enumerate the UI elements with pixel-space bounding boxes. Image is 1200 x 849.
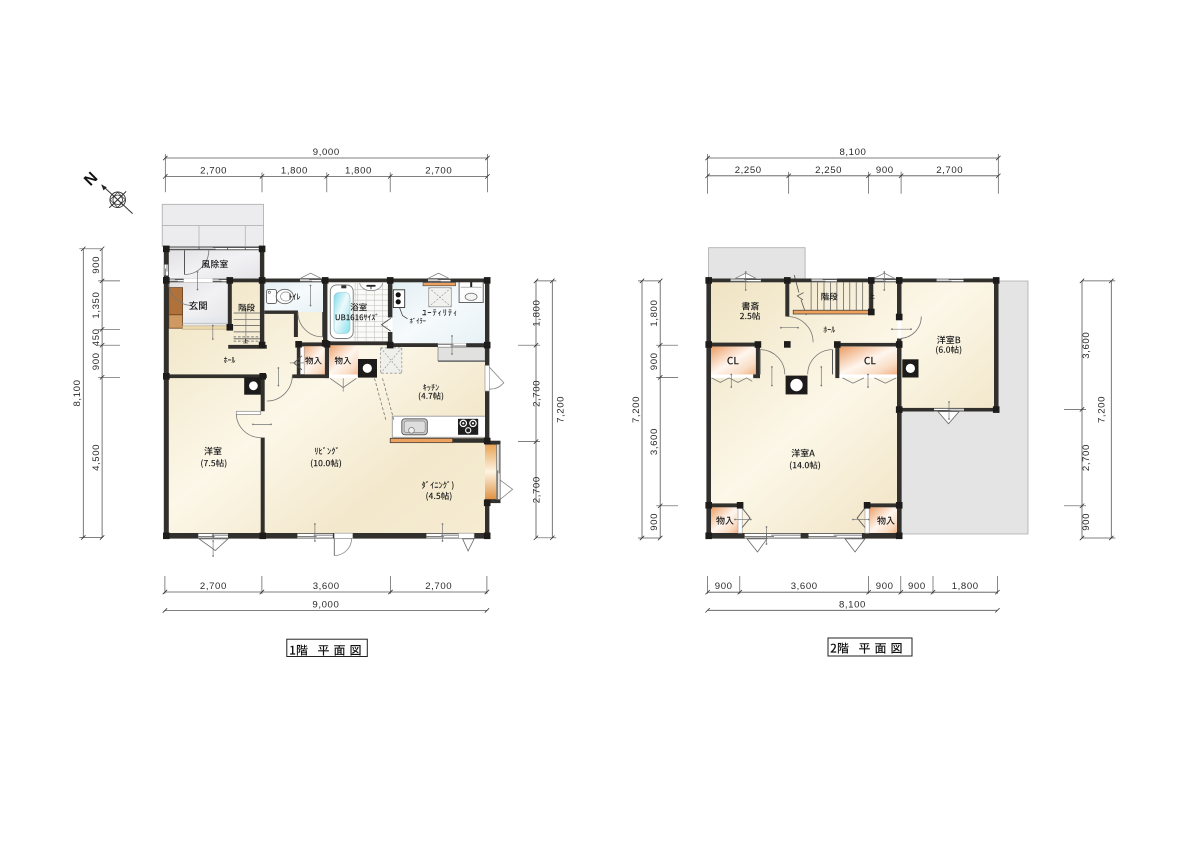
- svg-text:2,700: 2,700: [936, 165, 963, 176]
- svg-text:1,350: 1,350: [91, 292, 102, 319]
- svg-text:7,200: 7,200: [556, 396, 567, 423]
- svg-text:2,700: 2,700: [532, 380, 543, 407]
- svg-text:2,250: 2,250: [735, 165, 762, 176]
- svg-text:4,500: 4,500: [91, 444, 102, 471]
- svg-text:900: 900: [876, 165, 894, 176]
- svg-text:900: 900: [649, 352, 660, 370]
- svg-text:8,100: 8,100: [839, 147, 866, 158]
- svg-text:3,600: 3,600: [791, 581, 818, 592]
- svg-text:3,600: 3,600: [313, 581, 340, 592]
- svg-text:1,800: 1,800: [532, 300, 543, 327]
- svg-text:2,700: 2,700: [425, 581, 452, 592]
- svg-text:900: 900: [876, 581, 894, 592]
- svg-text:900: 900: [908, 581, 926, 592]
- svg-text:8,100: 8,100: [72, 379, 83, 406]
- svg-text:7,200: 7,200: [1097, 396, 1108, 423]
- svg-text:3,600: 3,600: [1081, 332, 1092, 359]
- svg-text:2,700: 2,700: [1081, 444, 1092, 471]
- svg-text:900: 900: [1081, 513, 1092, 531]
- svg-text:900: 900: [715, 581, 733, 592]
- svg-text:2,700: 2,700: [425, 165, 452, 176]
- svg-text:450: 450: [91, 328, 102, 346]
- svg-text:900: 900: [91, 256, 102, 274]
- svg-text:900: 900: [649, 513, 660, 531]
- svg-text:3,600: 3,600: [649, 428, 660, 455]
- svg-text:8,100: 8,100: [839, 599, 866, 610]
- svg-text:2,700: 2,700: [532, 476, 543, 503]
- svg-text:1,800: 1,800: [345, 165, 372, 176]
- svg-text:9,000: 9,000: [312, 600, 339, 611]
- svg-text:900: 900: [91, 352, 102, 370]
- svg-text:7,200: 7,200: [631, 396, 642, 423]
- svg-text:9,000: 9,000: [313, 147, 340, 158]
- svg-text:1,800: 1,800: [649, 300, 660, 327]
- svg-text:2,250: 2,250: [815, 165, 842, 176]
- svg-text:2,700: 2,700: [200, 165, 227, 176]
- svg-text:1,800: 1,800: [281, 165, 308, 176]
- svg-text:2,700: 2,700: [200, 581, 227, 592]
- svg-text:1,800: 1,800: [952, 581, 979, 592]
